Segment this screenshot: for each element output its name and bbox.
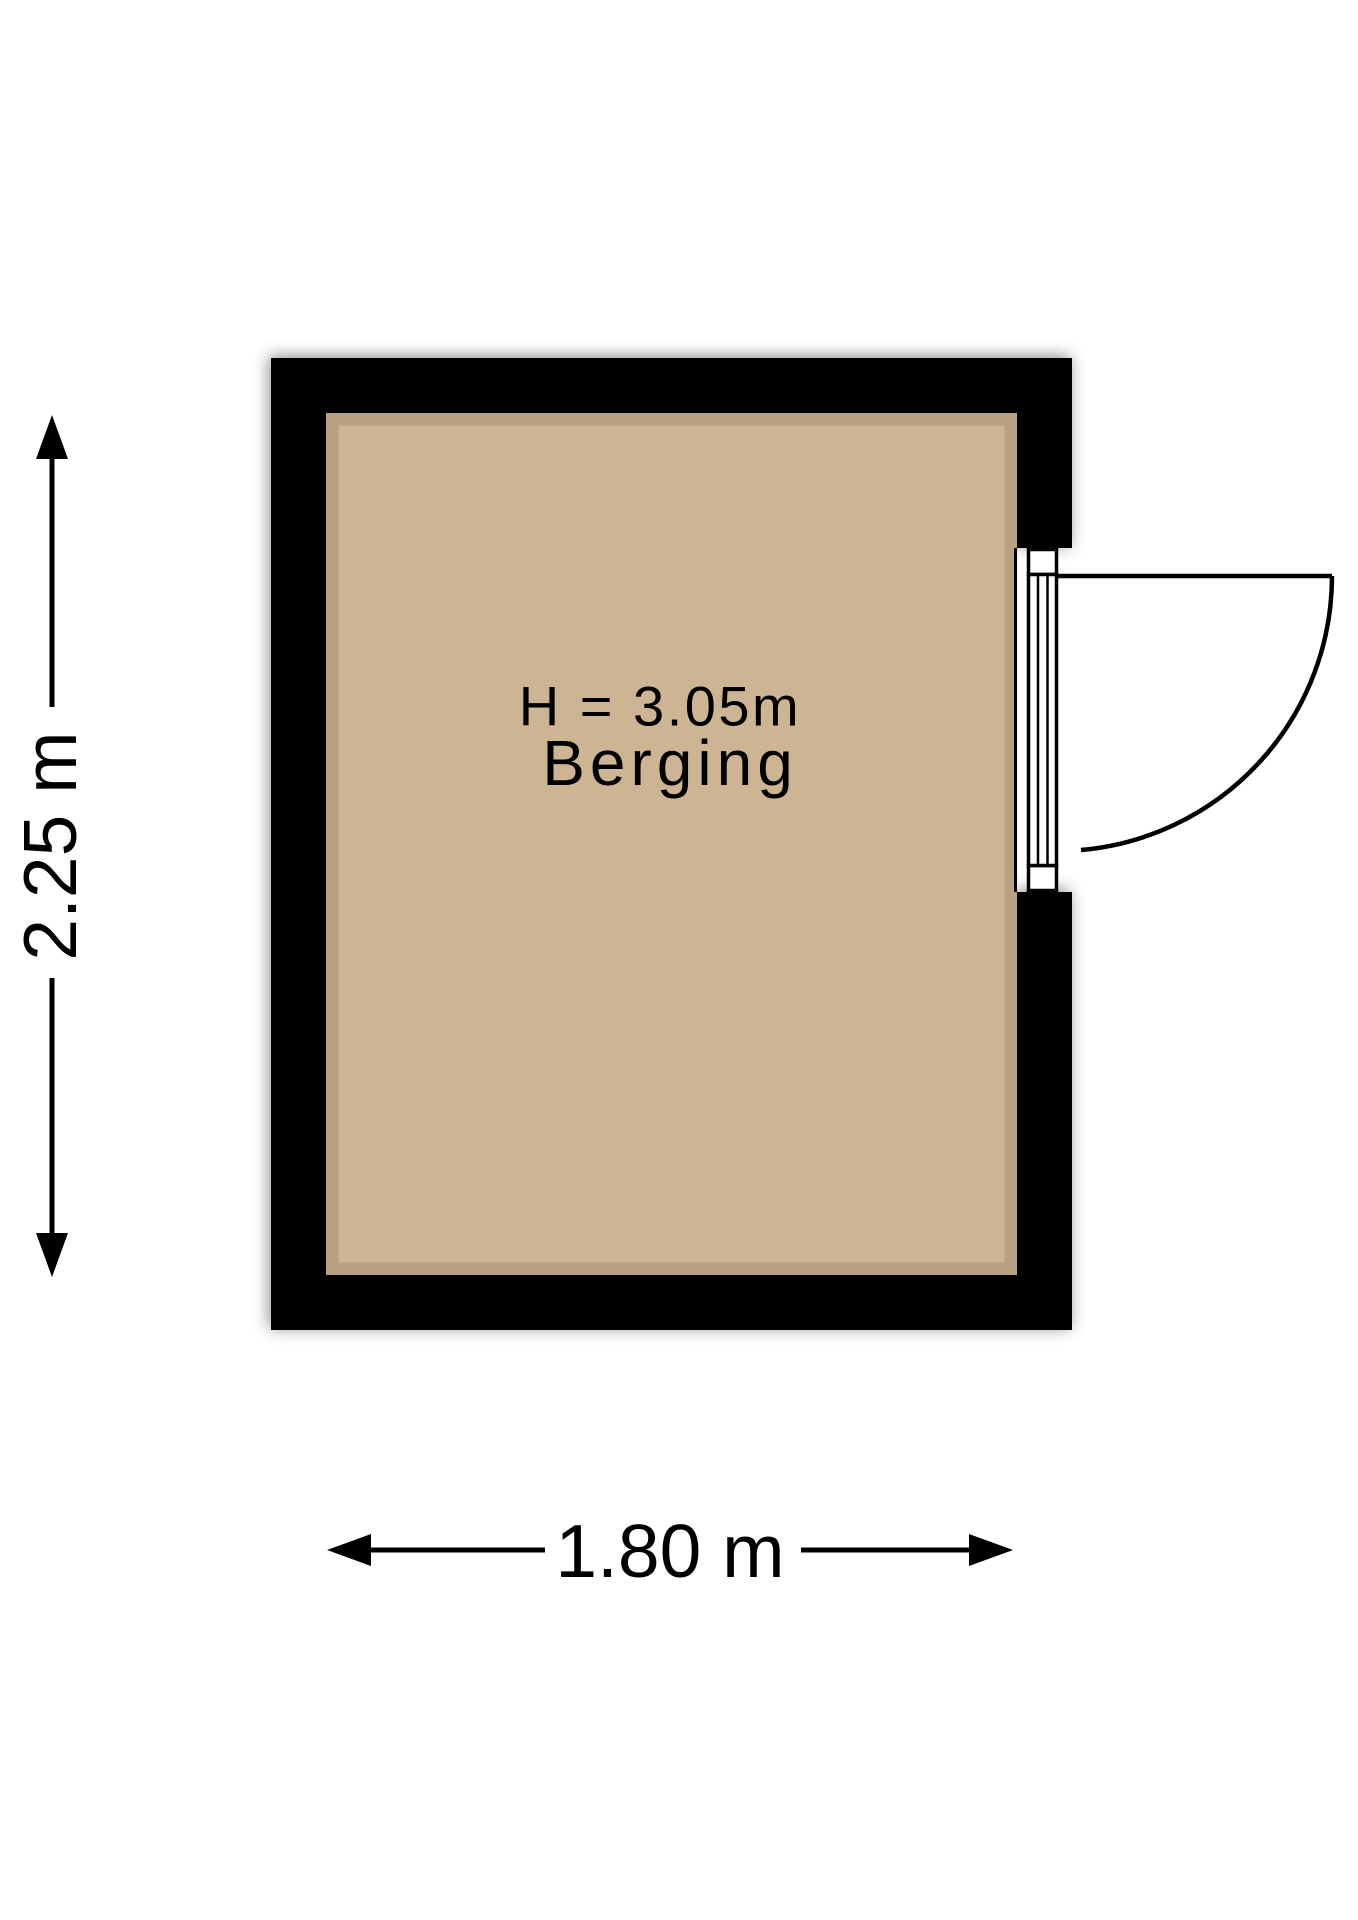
wall-right-upper (1017, 358, 1072, 548)
arrow-left-icon (327, 1534, 371, 1566)
dimension-horizontal-label: 1.80 m (555, 1509, 784, 1593)
arrow-right-icon (969, 1534, 1013, 1566)
door-jamb-bottom (1029, 866, 1057, 891)
room-floor (326, 413, 1017, 1275)
door-leaf-closed (1029, 575, 1057, 866)
door (1016, 548, 1333, 892)
dimension-horizontal: 1.80 m (327, 1509, 1013, 1593)
room-labels: H = 3.05m Berging (519, 675, 801, 800)
floorplan-canvas: 2.25 m 1.80 m H = 3.05m Berging (0, 0, 1358, 1920)
wall-right-lower (1017, 892, 1072, 1330)
arrow-down-icon (36, 1233, 68, 1277)
wall-left (271, 358, 326, 1330)
wall-top (271, 358, 1072, 413)
door-jamb-top (1029, 550, 1057, 575)
dimension-vertical-label: 2.25 m (8, 731, 92, 960)
door-swing-arc (1081, 576, 1332, 850)
floorplan-page: 2.25 m 1.80 m H = 3.05m Berging (0, 0, 1358, 1920)
dimension-vertical: 2.25 m (8, 415, 92, 1277)
arrow-up-icon (36, 415, 68, 459)
wall-bottom (271, 1275, 1072, 1330)
room-name-label: Berging (542, 727, 798, 799)
